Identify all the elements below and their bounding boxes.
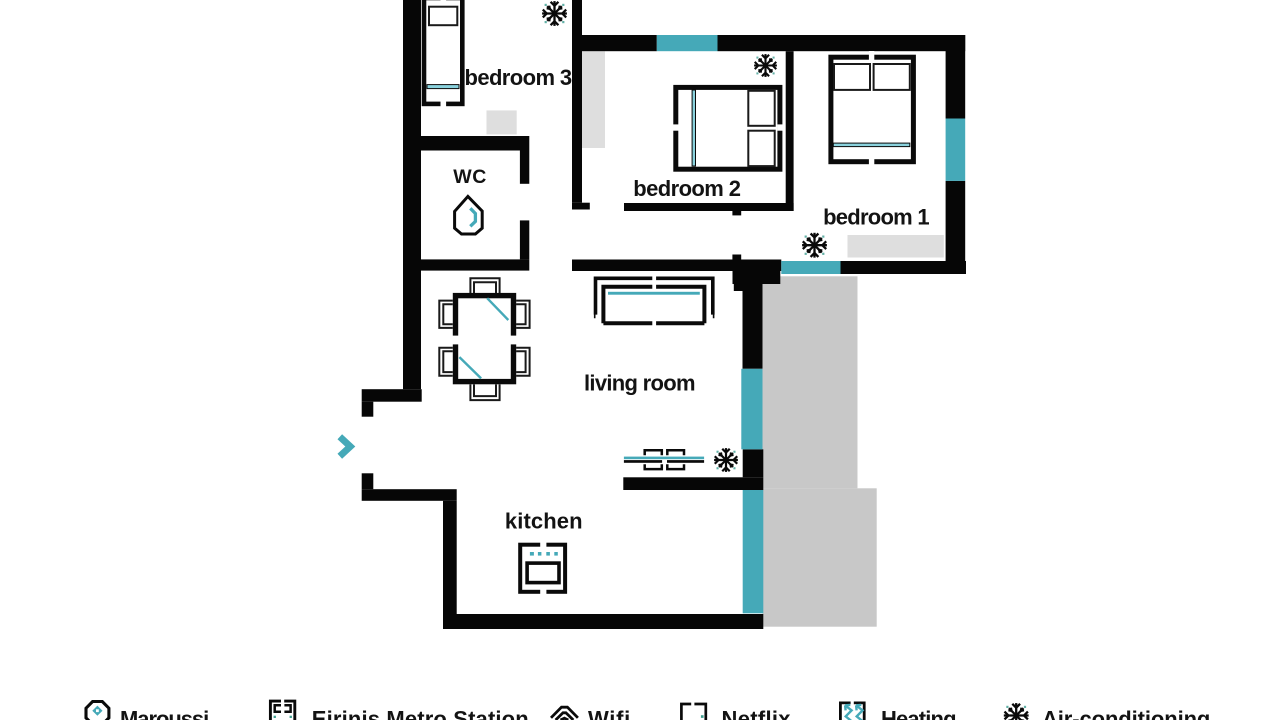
svg-text:Wifi: Wifi <box>588 707 631 720</box>
svg-text:Maroussi: Maroussi <box>120 707 208 720</box>
svg-text:Heating: Heating <box>881 707 956 720</box>
svg-text:Eirinis Metro Station: Eirinis Metro Station <box>312 707 529 720</box>
svg-text:bedroom 2: bedroom 2 <box>633 176 740 201</box>
svg-text:kitchen: kitchen <box>505 509 583 534</box>
svg-text:Netflix: Netflix <box>722 707 792 720</box>
svg-text:WC: WC <box>453 166 487 188</box>
svg-text:living room: living room <box>584 371 695 396</box>
svg-text:bedroom 1: bedroom 1 <box>823 204 929 229</box>
svg-text:Air-conditioning: Air-conditioning <box>1042 707 1210 720</box>
svg-text:bedroom 3: bedroom 3 <box>465 65 572 90</box>
